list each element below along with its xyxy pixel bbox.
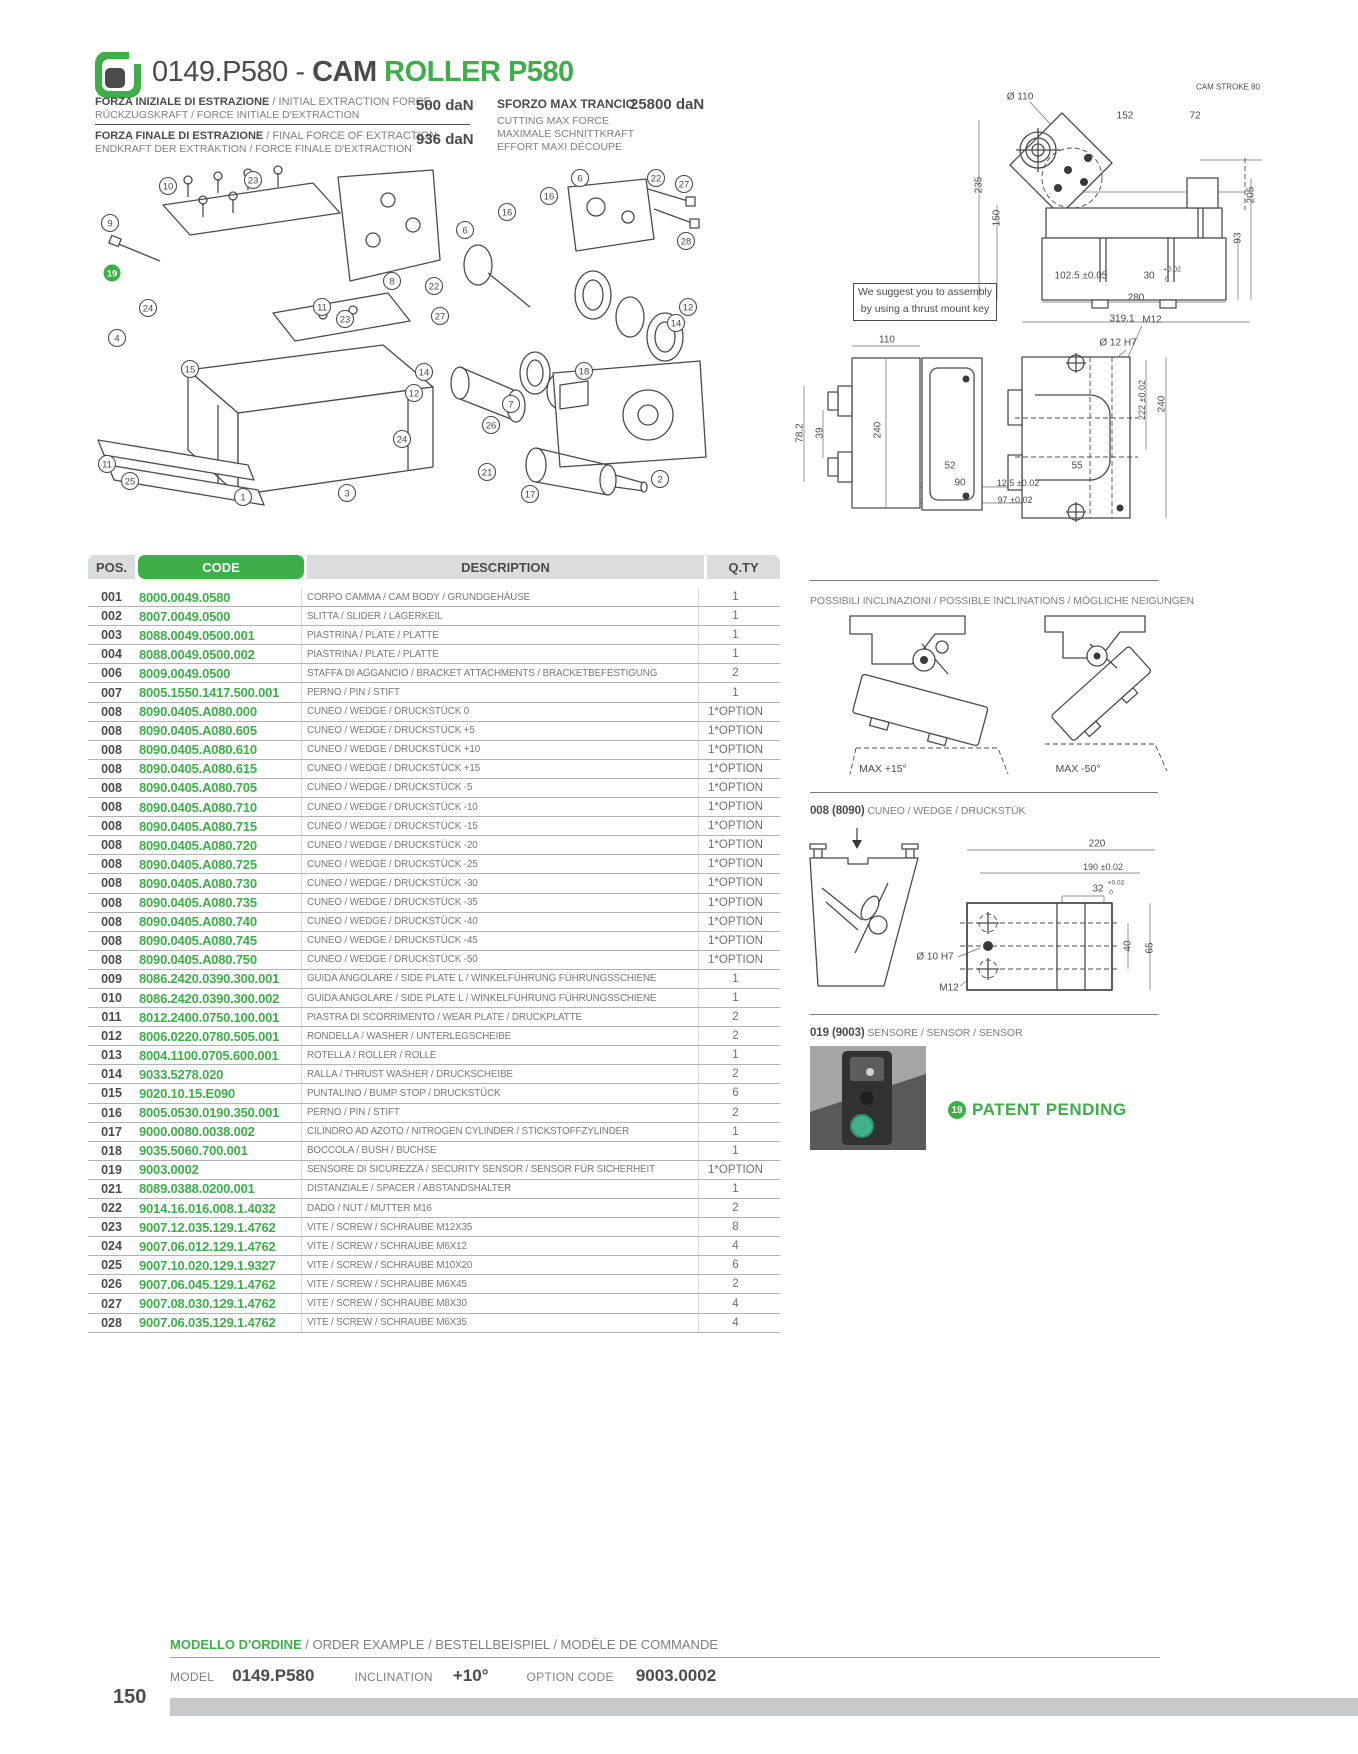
dim-label: 55 <box>1071 461 1082 472</box>
dim-label: 39 <box>815 427 826 438</box>
table-row: 0249007.06.012.129.1.4762VITE / SCREW / … <box>88 1237 780 1256</box>
cell-pos: 008 <box>88 724 135 738</box>
balloon-number: 19 <box>107 268 118 279</box>
balloon-number: 1 <box>240 492 245 503</box>
cell-qty: 2 <box>698 664 772 682</box>
initial-force-sublabel: RÜCKZUGSKRAFT / FORCE INITIALE D'EXTRACT… <box>95 109 359 121</box>
cell-qty: 6 <box>698 1084 772 1102</box>
cell-pos: 007 <box>88 686 135 700</box>
inclination-label: INCLINATION <box>354 1670 432 1684</box>
footer-bar <box>170 1698 1358 1716</box>
cell-desc: VITE / SCREW / SCHRAUBE M8X30 <box>301 1294 698 1312</box>
col-header-pos: POS. <box>88 555 135 579</box>
parts-table-header: POS. CODE DESCRIPTION Q.TY <box>88 555 780 579</box>
balloon-number: 3 <box>344 488 349 499</box>
cell-code: 9007.06.012.129.1.4762 <box>135 1239 301 1254</box>
option-code-value: 9003.0002 <box>636 1666 716 1686</box>
cell-code: 8090.0405.A080.730 <box>135 876 301 891</box>
section-divider <box>810 792 1158 793</box>
dim-label: 78.2 <box>795 423 806 442</box>
inclination-diagrams: MAX +15°MAX -50° <box>810 612 1160 777</box>
inclination-value: +10° <box>453 1666 489 1686</box>
dim-label: 152 <box>1117 111 1134 122</box>
dim-label: 150 <box>992 210 1003 227</box>
cell-desc: SENSORE DI SICUREZZA / SECURITY SENSOR /… <box>301 1161 698 1179</box>
cell-desc: PUNTALINO / BUMP STOP / DRUCKSTÜCK <box>301 1084 698 1102</box>
cell-code: 8088.0049.0500.001 <box>135 628 301 643</box>
balloon-number: 23 <box>248 175 259 186</box>
cell-code: 8090.0405.A080.705 <box>135 780 301 795</box>
title-code: 0149.P580 - <box>152 56 312 88</box>
table-row: 0088090.0405.A080.705CUNEO / WEDGE / DRU… <box>88 779 780 798</box>
table-row: 0239007.12.035.129.1.4762VITE / SCREW / … <box>88 1218 780 1237</box>
wedge-drawing: 220190 ±0.0232+0.020Ø 10 H7M124065 <box>810 828 1160 1000</box>
cell-code: 8090.0405.A080.735 <box>135 895 301 910</box>
cell-desc: CORPO CAMMA / CAM BODY / GRUNDGEHÄUSE <box>301 588 698 606</box>
cell-code: 8009.0049.0500 <box>135 666 301 681</box>
cell-code: 8012.2400.0750.100.001 <box>135 1010 301 1025</box>
balloon-number: 16 <box>502 207 513 218</box>
max-cut-line2: MAXIMALE SCHNITTKRAFT <box>497 128 634 140</box>
table-row: 0038088.0049.0500.001PIASTRINA / PLATE /… <box>88 626 780 645</box>
table-row: 0088090.0405.A080.745CUNEO / WEDGE / DRU… <box>88 932 780 951</box>
cell-code: 9000.0080.0038.002 <box>135 1124 301 1139</box>
cell-qty: 1*OPTION <box>698 874 772 892</box>
cell-pos: 014 <box>88 1067 135 1081</box>
cell-pos: 008 <box>88 800 135 814</box>
table-row: 0279007.08.030.129.1.4762VITE / SCREW / … <box>88 1294 780 1313</box>
cell-desc: VITE / SCREW / SCHRAUBE M6X35 <box>301 1314 698 1332</box>
balloon-number: 22 <box>429 281 440 292</box>
table-row: 0088090.0405.A080.605CUNEO / WEDGE / DRU… <box>88 722 780 741</box>
cell-pos: 022 <box>88 1201 135 1215</box>
cell-desc: GUIDA ANGOLARE / SIDE PLATE L / WINKELFÜ… <box>301 989 698 1007</box>
cell-desc: PERNO / PIN / STIFT <box>301 683 698 701</box>
dim-label: 65 <box>1145 942 1156 953</box>
table-row: 0028007.0049.0500SLITTA / SLIDER / LAGER… <box>88 607 780 626</box>
cell-code: 8086.2420.0390.300.001 <box>135 971 301 986</box>
dim-label: +0.02 <box>1108 880 1124 887</box>
cell-qty: 1*OPTION <box>698 913 772 931</box>
cell-desc: GUIDA ANGOLARE / SIDE PLATE L / WINKELFÜ… <box>301 970 698 988</box>
dim-label: 235 <box>974 177 985 194</box>
table-row: 0289007.06.035.129.1.4762VITE / SCREW / … <box>88 1314 780 1333</box>
cell-desc: RONDELLA / WASHER / UNTERLEGSCHEIBE <box>301 1027 698 1045</box>
table-row: 0088090.0405.A080.610CUNEO / WEDGE / DRU… <box>88 741 780 760</box>
table-row: 0138004.1100.0705.600.001ROTELLA / ROLLE… <box>88 1046 780 1065</box>
cell-desc: CUNEO / WEDGE / DRUCKSTÜCK 0 <box>301 703 698 721</box>
cell-qty: 2 <box>698 1275 772 1293</box>
cell-code: 8007.0049.0500 <box>135 609 301 624</box>
table-row: 0149033.5278.020RALLA / THRUST WASHER / … <box>88 1065 780 1084</box>
table-row: 0098086.2420.0390.300.001GUIDA ANGOLARE … <box>88 970 780 989</box>
cell-qty: 1*OPTION <box>698 722 772 740</box>
cell-desc: CUNEO / WEDGE / DRUCKSTÜCK +5 <box>301 722 698 740</box>
cell-qty: 1 <box>698 607 772 625</box>
table-row: 0189035.5060.700.001BOCCOLA / BUSH / BUC… <box>88 1142 780 1161</box>
cell-pos: 008 <box>88 705 135 719</box>
table-row: 0088090.0405.A080.740CUNEO / WEDGE / DRU… <box>88 913 780 932</box>
cell-desc: CUNEO / WEDGE / DRUCKSTÜCK -25 <box>301 855 698 873</box>
section-divider <box>810 580 1158 581</box>
table-row: 0259007.10.020.129.1.9327VITE / SCREW / … <box>88 1256 780 1275</box>
cell-qty: 6 <box>698 1256 772 1274</box>
cell-pos: 023 <box>88 1220 135 1234</box>
cell-qty: 1*OPTION <box>698 836 772 854</box>
cell-pos: 024 <box>88 1239 135 1253</box>
cell-desc: VITE / SCREW / SCHRAUBE M12X35 <box>301 1218 698 1236</box>
table-row: 0269007.06.045.129.1.4762VITE / SCREW / … <box>88 1275 780 1294</box>
balloon-number: 27 <box>435 311 446 322</box>
cell-code: 8005.0530.0190.350.001 <box>135 1105 301 1120</box>
table-row: 0088090.0405.A080.615CUNEO / WEDGE / DRU… <box>88 760 780 779</box>
balloon-number: 9 <box>107 218 112 229</box>
cell-code: 8090.0405.A080.750 <box>135 952 301 967</box>
table-row: 0128006.0220.0780.505.001RONDELLA / WASH… <box>88 1027 780 1046</box>
balloon-number: 14 <box>419 367 430 378</box>
cell-pos: 008 <box>88 915 135 929</box>
cell-qty: 4 <box>698 1237 772 1255</box>
balloon-number: 24 <box>143 303 154 314</box>
cell-code: 8089.0388.0200.001 <box>135 1181 301 1196</box>
table-row: 0199003.0002SENSORE DI SICUREZZA / SECUR… <box>88 1161 780 1180</box>
cell-qty: 1*OPTION <box>698 817 772 835</box>
cell-qty: 2 <box>698 1027 772 1045</box>
cell-pos: 010 <box>88 991 135 1005</box>
cell-pos: 008 <box>88 934 135 948</box>
table-row: 0088090.0405.A080.730CUNEO / WEDGE / DRU… <box>88 874 780 893</box>
dim-label: 52 <box>944 461 955 472</box>
max-cut-title: SFORZO MAX TRANCIO <box>497 97 635 111</box>
cell-pos: 019 <box>88 1163 135 1177</box>
cell-code: 8090.0405.A080.715 <box>135 819 301 834</box>
cell-qty: 1*OPTION <box>698 741 772 759</box>
cell-desc: CILINDRO AD AZOTO / NITROGEN CYLINDER / … <box>301 1123 698 1141</box>
max-cut-line3: EFFORT MAXI DÉCOUPE <box>497 141 622 153</box>
cell-desc: DISTANZIALE / SPACER / ABSTANDSHALTER <box>301 1180 698 1198</box>
cell-desc: VITE / SCREW / SCHRAUBE M10X20 <box>301 1256 698 1274</box>
dim-label: 190 ±0.02 <box>1083 862 1123 872</box>
cell-code: 9003.0002 <box>135 1162 301 1177</box>
cell-pos: 008 <box>88 953 135 967</box>
dim-label: 0 <box>1165 277 1169 284</box>
table-row: 0088090.0405.A080.750CUNEO / WEDGE / DRU… <box>88 951 780 970</box>
cell-code: 9007.06.045.129.1.4762 <box>135 1277 301 1292</box>
table-row: 0118012.2400.0750.100.001PIASTRA DI SCOR… <box>88 1008 780 1027</box>
table-row: 0108086.2420.0390.300.002GUIDA ANGOLARE … <box>88 989 780 1008</box>
cell-code: 8090.0405.A080.610 <box>135 742 301 757</box>
cell-code: 9035.5060.700.001 <box>135 1143 301 1158</box>
cell-desc: PIASTRINA / PLATE / PLATTE <box>301 645 698 663</box>
balloon-number: 11 <box>317 302 327 313</box>
cell-pos: 021 <box>88 1182 135 1196</box>
cell-pos: 004 <box>88 647 135 661</box>
dim-label: 0 <box>1109 890 1113 897</box>
brand-logo-icon <box>95 52 141 98</box>
cell-desc: CUNEO / WEDGE / DRUCKSTÜCK -5 <box>301 779 698 797</box>
table-row: 0078005.1550.1417.500.001PERNO / PIN / S… <box>88 683 780 702</box>
cell-pos: 027 <box>88 1297 135 1311</box>
cell-desc: ROTELLA / ROLLER / ROLLE <box>301 1046 698 1064</box>
cell-desc: CUNEO / WEDGE / DRUCKSTÜCK -50 <box>301 951 698 969</box>
dim-label: 12.5 ±0.02 <box>997 478 1039 488</box>
cell-qty: 1 <box>698 588 772 606</box>
table-row: 0168005.0530.0190.350.001PERNO / PIN / S… <box>88 1104 780 1123</box>
dim-label: 30 <box>1143 271 1154 282</box>
cell-desc: STAFFA DI AGGANCIO / BRACKET ATTACHMENTS… <box>301 664 698 682</box>
cell-pos: 006 <box>88 666 135 680</box>
cell-code: 8090.0405.A080.720 <box>135 838 301 853</box>
cell-code: 8090.0405.A080.745 <box>135 933 301 948</box>
cell-desc: PIASTRINA / PLATE / PLATTE <box>301 626 698 644</box>
cell-qty: 1*OPTION <box>698 855 772 873</box>
cell-desc: CUNEO / WEDGE / DRUCKSTÜCK +15 <box>301 760 698 778</box>
balloon-number: 14 <box>671 318 682 329</box>
dim-label: MAX +15° <box>859 763 907 775</box>
cell-code: 8006.0220.0780.505.001 <box>135 1029 301 1044</box>
cell-code: 9007.06.035.129.1.4762 <box>135 1315 301 1330</box>
table-row: 0229014.16.016.008.1.4032DADO / NUT / MU… <box>88 1199 780 1218</box>
cell-pos: 008 <box>88 896 135 910</box>
cell-qty: 1 <box>698 1142 772 1160</box>
dim-label: MAX -50° <box>1055 763 1100 775</box>
cell-desc: VITE / SCREW / SCHRAUBE M6X45 <box>301 1275 698 1293</box>
balloon-number: 8 <box>389 276 394 287</box>
patent-pending-label: PATENT PENDING <box>972 1100 1127 1120</box>
cell-qty: 8 <box>698 1218 772 1236</box>
balloon-number: 15 <box>185 364 196 375</box>
cell-pos: 008 <box>88 743 135 757</box>
cell-qty: 1 <box>698 683 772 701</box>
cell-pos: 008 <box>88 876 135 890</box>
initial-force-label: FORZA INIZIALE DI ESTRAZIONE / INITIAL E… <box>95 96 431 108</box>
dim-label: 40 <box>1123 940 1134 951</box>
dim-label: 102.5 ±0.05 <box>1055 271 1108 282</box>
assembly-note-line1: We suggest you to assembly <box>854 284 996 301</box>
table-row: 0088090.0405.A080.000CUNEO / WEDGE / DRU… <box>88 703 780 722</box>
cell-qty: 2 <box>698 1199 772 1217</box>
cell-code: 9020.10.15.E090 <box>135 1086 301 1101</box>
table-row: 0159020.10.15.E090PUNTALINO / BUMP STOP … <box>88 1084 780 1103</box>
cell-qty: 1*OPTION <box>698 779 772 797</box>
cell-qty: 2 <box>698 1065 772 1083</box>
balloon-number: 26 <box>486 420 497 431</box>
balloon-number: 22 <box>651 173 662 184</box>
cell-qty: 1 <box>698 989 772 1007</box>
cell-pos: 017 <box>88 1125 135 1139</box>
dim-label: 32 <box>1092 884 1103 895</box>
balloon-number: 11 <box>102 459 112 470</box>
cell-pos: 008 <box>88 819 135 833</box>
dim-label: 93 <box>1233 232 1244 243</box>
dim-label: 205 <box>1246 187 1257 204</box>
cell-desc: CUNEO / WEDGE / DRUCKSTÜCK -30 <box>301 874 698 892</box>
patent-badge: 19 <box>948 1101 966 1119</box>
cell-qty: 1 <box>698 1046 772 1064</box>
cell-qty: 1 <box>698 970 772 988</box>
cell-pos: 008 <box>88 762 135 776</box>
cell-desc: PIASTRA DI SCORRIMENTO / WEAR PLATE / DR… <box>301 1008 698 1026</box>
cell-code: 8004.1100.0705.600.001 <box>135 1048 301 1063</box>
dim-label: 72 <box>1189 111 1200 122</box>
balloon-number: 10 <box>163 181 174 192</box>
cell-code: 8090.0405.A080.000 <box>135 704 301 719</box>
cell-qty: 1 <box>698 1123 772 1141</box>
cell-pos: 026 <box>88 1277 135 1291</box>
wedge-heading: 008 (8090) CUNEO / WEDGE / DRUCKSTÜK <box>810 805 1025 817</box>
balloon-number: 25 <box>125 476 136 487</box>
cell-qty: 2 <box>698 1008 772 1026</box>
cell-pos: 003 <box>88 628 135 642</box>
cell-desc: CUNEO / WEDGE / DRUCKSTÜCK -20 <box>301 836 698 854</box>
cell-desc: PERNO / PIN / STIFT <box>301 1104 698 1122</box>
option-code-label: OPTION CODE <box>527 1670 614 1684</box>
max-cut-line1: CUTTING MAX FORCE <box>497 115 609 127</box>
cell-qty: 1*OPTION <box>698 798 772 816</box>
cell-pos: 001 <box>88 590 135 604</box>
cell-code: 8090.0405.A080.710 <box>135 800 301 815</box>
cell-qty: 1 <box>698 1180 772 1198</box>
balloon-number: 23 <box>340 314 351 325</box>
exploded-view-drawing: 1023622271616962819822112327241214415141… <box>88 165 785 555</box>
cell-pos: 018 <box>88 1144 135 1158</box>
dim-label: Ø 110 <box>1007 92 1034 103</box>
cell-qty: 1 <box>698 626 772 644</box>
cell-desc: CUNEO / WEDGE / DRUCKSTÜCK +10 <box>301 741 698 759</box>
section-divider <box>810 1014 1158 1015</box>
dim-label: 90 <box>954 478 965 489</box>
table-row: 0088090.0405.A080.715CUNEO / WEDGE / DRU… <box>88 817 780 836</box>
order-example-heading: MODELLO D'ORDINE / ORDER EXAMPLE / BESTE… <box>170 1637 718 1652</box>
dim-label: M12 <box>939 983 958 994</box>
cell-desc: CUNEO / WEDGE / DRUCKSTÜCK -10 <box>301 798 698 816</box>
page-number: 150 <box>113 1686 146 1709</box>
cell-qty: 4 <box>698 1314 772 1332</box>
cell-desc: SLITTA / SLIDER / LAGERKEIL <box>301 607 698 625</box>
inclinations-heading: POSSIBILI INCLINAZIONI / POSSIBLE INCLIN… <box>810 595 1194 607</box>
cell-code: 9007.10.020.129.1.9327 <box>135 1258 301 1273</box>
dim-label: 240 <box>1157 396 1168 413</box>
balloon-number: 28 <box>681 236 692 247</box>
cell-desc: CUNEO / WEDGE / DRUCKSTÜCK -45 <box>301 932 698 950</box>
table-row: 0088090.0405.A080.710CUNEO / WEDGE / DRU… <box>88 798 780 817</box>
cell-pos: 002 <box>88 609 135 623</box>
order-example-row: MODEL 0149.P580 INCLINATION +10° OPTION … <box>170 1666 716 1686</box>
final-force-sublabel: ENDKRAFT DER EXTRAKTION / FORCE FINALE D… <box>95 143 412 155</box>
cell-qty: 1*OPTION <box>698 703 772 721</box>
balloon-number: 6 <box>462 225 467 236</box>
cell-code: 9014.16.016.008.1.4032 <box>135 1201 301 1216</box>
cell-pos: 025 <box>88 1258 135 1272</box>
final-force-label: FORZA FINALE DI ESTRAZIONE / FINAL FORCE… <box>95 130 437 142</box>
order-divider <box>170 1657 1160 1658</box>
cell-pos: 012 <box>88 1029 135 1043</box>
cell-pos: 016 <box>88 1106 135 1120</box>
col-header-description: DESCRIPTION <box>307 555 704 579</box>
balloon-number: 4 <box>114 333 119 344</box>
cell-pos: 028 <box>88 1316 135 1330</box>
balloon-number: 12 <box>683 302 694 313</box>
cell-code: 8090.0405.A080.605 <box>135 723 301 738</box>
model-label: MODEL <box>170 1670 214 1684</box>
cell-qty: 1*OPTION <box>698 1161 772 1179</box>
cell-pos: 009 <box>88 972 135 986</box>
table-row: 0179000.0080.0038.002CILINDRO AD AZOTO /… <box>88 1123 780 1142</box>
dim-label: 110 <box>879 335 895 346</box>
cell-code: 9033.5278.020 <box>135 1067 301 1082</box>
cell-pos: 015 <box>88 1086 135 1100</box>
cell-qty: 2 <box>698 1104 772 1122</box>
cell-qty: 1 <box>698 645 772 663</box>
cell-qty: 1*OPTION <box>698 760 772 778</box>
balloon-number: 16 <box>544 191 555 202</box>
cell-desc: VITE / SCREW / SCHRAUBE M6X12 <box>301 1237 698 1255</box>
cell-qty: 1*OPTION <box>698 932 772 950</box>
cell-pos: 008 <box>88 838 135 852</box>
max-cut-value: 25800 daN <box>630 96 704 113</box>
table-row: 0088090.0405.A080.720CUNEO / WEDGE / DRU… <box>88 836 780 855</box>
table-row: 0018000.0049.0580CORPO CAMMA / CAM BODY … <box>88 588 780 607</box>
balloon-number: 21 <box>482 467 493 478</box>
cell-code: 9007.12.035.129.1.4762 <box>135 1220 301 1235</box>
dim-label: 222 ±0.02 <box>1137 380 1147 420</box>
dim-label: +0.02 <box>1163 267 1181 274</box>
sensor-photo <box>810 1046 926 1155</box>
cell-qty: 4 <box>698 1294 772 1312</box>
table-row: 0088090.0405.A080.725CUNEO / WEDGE / DRU… <box>88 855 780 874</box>
dim-label: M12 <box>1142 315 1161 326</box>
cell-desc: CUNEO / WEDGE / DRUCKSTÜCK -40 <box>301 913 698 931</box>
catalog-page: 0149.P580 - CAM ROLLER P580 FORZA INIZIA… <box>0 0 1358 1754</box>
balloon-number: 17 <box>525 489 536 500</box>
dim-label: Ø 10 H7 <box>916 952 953 963</box>
cell-desc: CUNEO / WEDGE / DRUCKSTÜCK -15 <box>301 817 698 835</box>
cell-code: 8090.0405.A080.740 <box>135 914 301 929</box>
col-header-qty: Q.TY <box>707 555 780 579</box>
balloon-number: 2 <box>657 474 662 485</box>
spec-divider <box>95 124 470 125</box>
table-row: 0068009.0049.0500STAFFA DI AGGANCIO / BR… <box>88 664 780 683</box>
parts-table: POS. CODE DESCRIPTION Q.TY 0018000.0049.… <box>88 555 780 1333</box>
cell-code: 8086.2420.0390.300.002 <box>135 991 301 1006</box>
final-force-value: 936 daN <box>416 131 474 148</box>
col-header-code: CODE <box>138 555 304 579</box>
balloon-number: 12 <box>409 388 420 399</box>
balloon-number: 27 <box>679 179 690 190</box>
front-view-drawing: 11078.239240Ø 12 H7M12222 ±0.02240529012… <box>790 300 1170 528</box>
balloon-number: 24 <box>397 434 408 445</box>
cell-desc: BOCCOLA / BUSH / BUCHSE <box>301 1142 698 1160</box>
cell-pos: 013 <box>88 1048 135 1062</box>
balloon-number: 18 <box>579 366 590 377</box>
balloon-number: 6 <box>577 173 582 184</box>
dim-label: 220 <box>1089 839 1106 850</box>
dim-label: Ø 12 H7 <box>1099 338 1136 349</box>
cell-qty: 1*OPTION <box>698 951 772 969</box>
table-row: 0048088.0049.0500.002PIASTRINA / PLATE /… <box>88 645 780 664</box>
table-row: 0088090.0405.A080.735CUNEO / WEDGE / DRU… <box>88 894 780 913</box>
dim-label: CAM STROKE 80 <box>1196 83 1260 92</box>
cell-code: 8088.0049.0500.002 <box>135 647 301 662</box>
cell-code: 8090.0405.A080.725 <box>135 857 301 872</box>
balloon-number: 7 <box>508 399 513 410</box>
cell-desc: CUNEO / WEDGE / DRUCKSTÜCK -35 <box>301 894 698 912</box>
table-row: 0218089.0388.0200.001DISTANZIALE / SPACE… <box>88 1180 780 1199</box>
parts-table-body: 0018000.0049.0580CORPO CAMMA / CAM BODY … <box>88 588 780 1333</box>
dim-label: 240 <box>873 422 884 439</box>
cell-code: 9007.08.030.129.1.4762 <box>135 1296 301 1311</box>
cell-code: 8090.0405.A080.615 <box>135 761 301 776</box>
